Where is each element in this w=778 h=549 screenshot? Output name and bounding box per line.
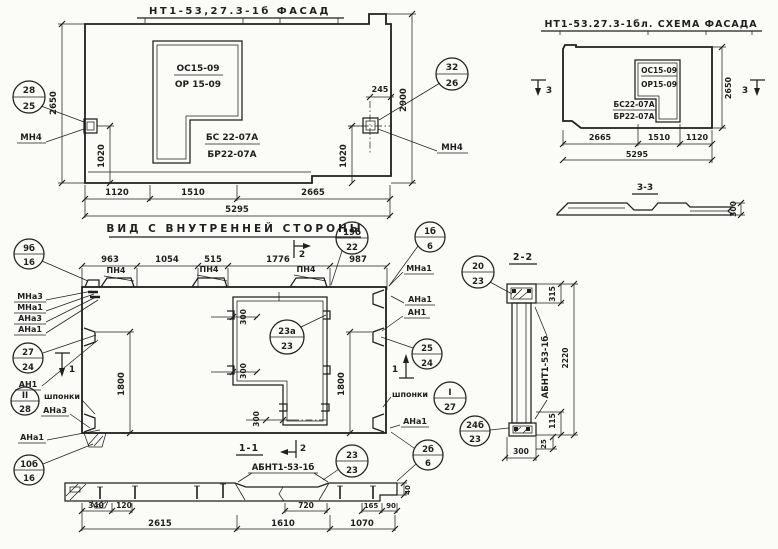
- svg-text:1800: 1800: [117, 372, 127, 396]
- svg-text:300: 300: [239, 363, 248, 379]
- svg-text:МН4: МН4: [441, 143, 463, 153]
- balloon-32-26: 32 26: [379, 58, 468, 120]
- svg-text:5295: 5295: [225, 205, 249, 215]
- svg-text:АНа1: АНа1: [408, 295, 432, 304]
- cut-mark-2-top: 2: [294, 240, 311, 260]
- svg-text:315: 315: [548, 286, 557, 302]
- web: [512, 303, 531, 423]
- svg-text:шпонки: шпонки: [44, 392, 80, 401]
- svg-text:28: 28: [23, 86, 36, 96]
- svg-text:987: 987: [349, 255, 367, 265]
- window-anchor-tabs: [227, 311, 330, 411]
- svg-text:28: 28: [19, 405, 31, 415]
- svg-text:1120: 1120: [686, 133, 709, 142]
- svg-text:1б: 1б: [424, 226, 436, 237]
- window-offset-dims: 300 300 300: [211, 309, 326, 427]
- svg-text:23: 23: [346, 451, 358, 461]
- svg-text:1: 1: [69, 365, 75, 375]
- svg-text:23: 23: [281, 342, 293, 352]
- svg-text:МНа3: МНа3: [17, 292, 43, 301]
- svg-text:1800: 1800: [337, 372, 347, 396]
- svg-text:3: 3: [546, 86, 552, 96]
- svg-text:1776: 1776: [266, 255, 290, 265]
- balloon-23-23: 23 23: [323, 445, 368, 480]
- beam-label: АБНТ1-53-1б: [252, 462, 315, 473]
- balloon-9b-16: 9б 16: [14, 239, 88, 281]
- section-2-2: 2-2 АБНТ1-53-1б 315 2220 115: [460, 252, 578, 461]
- svg-text:2665: 2665: [589, 133, 612, 142]
- facade-dimensions: 2650 1020 2900 1020 245 1120 1510 2665: [49, 11, 416, 219]
- svg-text:10б: 10б: [20, 459, 38, 470]
- svg-text:24б: 24б: [466, 420, 484, 431]
- svg-text:1054: 1054: [155, 255, 179, 265]
- scheme-sill-label-top: БС22-07А: [613, 100, 654, 109]
- inner-vertical-dimensions: 1800 1800: [96, 329, 372, 436]
- scheme-cut-mark-right: 3: [742, 80, 765, 96]
- balloon-10b-16: 10б 16: [14, 444, 93, 485]
- balloon-1b-6: 1б 6: [389, 222, 445, 286]
- scheme-opening-label-top: ОС15-09: [641, 66, 677, 75]
- svg-text:1: 1: [392, 365, 398, 375]
- scheme-sill-label-bottom: БР22-07А: [613, 112, 654, 121]
- section-2-2-title: 2-2: [513, 252, 533, 263]
- svg-text:1610: 1610: [271, 519, 295, 529]
- svg-text:32: 32: [446, 63, 459, 73]
- svg-text:515: 515: [204, 255, 222, 265]
- svg-text:16: 16: [23, 474, 35, 484]
- facade-opening-label-top: ОС15-09: [176, 64, 219, 74]
- section-1-1-title: 1-1: [239, 443, 259, 454]
- svg-text:2б: 2б: [422, 444, 434, 455]
- inner-view: ВИД С ВНУТРЕННЕЙ СТОРОНЫ ПН4 ПН4 ПН4 963…: [11, 222, 466, 485]
- section-3-3: 3-3 300: [557, 183, 745, 218]
- inner-panel-outline: [82, 287, 386, 433]
- svg-text:300: 300: [513, 447, 529, 456]
- balloon-I-27: I 27: [434, 382, 466, 414]
- svg-text:720: 720: [298, 501, 314, 510]
- svg-text:3: 3: [742, 86, 748, 96]
- svg-text:25: 25: [540, 439, 548, 449]
- svg-text:МН4: МН4: [20, 133, 42, 143]
- svg-text:22: 22: [346, 243, 358, 253]
- drawing-sheet: НТ1-53,27.3-1б ФАСАД ОС15-09 ОР 15-09 БС…: [0, 0, 778, 549]
- svg-text:120: 120: [116, 501, 132, 510]
- svg-text:40: 40: [404, 485, 412, 495]
- section-3-3-title: 3-3: [637, 183, 653, 193]
- scheme-opening-label-bottom: ОР15-09: [641, 80, 677, 89]
- svg-text:1510: 1510: [648, 133, 671, 142]
- svg-text:300: 300: [252, 411, 261, 427]
- svg-text:340: 340: [88, 501, 104, 510]
- svg-text:АН1: АН1: [408, 308, 427, 317]
- svg-text:1020: 1020: [97, 144, 107, 168]
- balloon-20-23: 20 23: [462, 256, 512, 294]
- inner-title: ВИД С ВНУТРЕННЕЙ СТОРОНЫ: [106, 222, 363, 235]
- svg-text:24: 24: [22, 363, 34, 373]
- svg-text:1510: 1510: [181, 188, 205, 198]
- svg-text:27: 27: [444, 403, 456, 413]
- svg-text:МНа1: МНа1: [406, 264, 432, 273]
- corner-anchor-marks: [88, 292, 100, 297]
- facade-anchor-left: [84, 119, 97, 133]
- facade-anchor-right: [348, 101, 392, 155]
- loop-label-1: ПН4: [107, 266, 126, 275]
- scheme-title: НТ1-53.27.3-1бл. СХЕМА ФАСАДА: [544, 19, 757, 30]
- svg-text:963: 963: [101, 255, 119, 265]
- balloon-2b-6: 2б 6: [391, 432, 443, 481]
- section-1-1-outline: [65, 483, 397, 501]
- svg-text:2220: 2220: [561, 348, 570, 369]
- inner-top-dimensions: 963 1054 515 1776 987: [79, 255, 390, 290]
- svg-text:20: 20: [472, 262, 484, 272]
- section-3-3-depth: 300: [729, 201, 738, 217]
- svg-text:27: 27: [22, 348, 34, 358]
- scheme-view: НТ1-53.27.3-1бл. СХЕМА ФАСАДА ОС15-09 ОР…: [531, 19, 765, 163]
- beam-label-rotated: АБНТ1-53-1б: [540, 336, 551, 399]
- svg-text:165: 165: [364, 502, 379, 510]
- svg-text:I: I: [448, 388, 451, 398]
- svg-text:26: 26: [446, 79, 459, 89]
- facade-anchor-callout-left: МН4: [17, 129, 84, 143]
- facade-title: НТ1-53,27.3-1б ФАСАД: [149, 5, 331, 17]
- section-2-2-dimensions: 315 2220 115 25 300: [502, 281, 578, 461]
- svg-text:23: 23: [469, 435, 481, 445]
- balloon-27-24: 27 24: [13, 335, 96, 373]
- corner-tab-hatched: [84, 433, 106, 447]
- svg-text:23: 23: [472, 277, 484, 287]
- svg-text:6: 6: [425, 459, 431, 469]
- svg-text:23: 23: [346, 466, 358, 476]
- svg-text:115: 115: [548, 413, 557, 429]
- svg-text:25: 25: [421, 344, 433, 354]
- balloon-23a-23: 23а 23: [270, 315, 326, 354]
- drawing-canvas: НТ1-53,27.3-1б ФАСАД ОС15-09 ОР 15-09 БС…: [0, 0, 778, 549]
- balloon-II-28: II 28: [11, 387, 39, 415]
- svg-text:24: 24: [421, 359, 433, 369]
- svg-text:9б: 9б: [23, 243, 35, 254]
- svg-text:90: 90: [386, 502, 396, 510]
- svg-text:25: 25: [23, 102, 36, 112]
- facade-sill-label-top: БС 22-07А: [206, 133, 258, 143]
- svg-text:1120: 1120: [105, 188, 129, 198]
- svg-text:6: 6: [427, 242, 433, 252]
- svg-text:АНа3: АНа3: [18, 314, 42, 323]
- svg-text:2650: 2650: [49, 91, 59, 115]
- svg-text:2900: 2900: [399, 88, 409, 112]
- svg-text:23а: 23а: [278, 327, 296, 337]
- svg-text:МНа1: МНа1: [17, 303, 43, 312]
- svg-text:АНа1: АНа1: [18, 325, 42, 334]
- facade-view: НТ1-53,27.3-1б ФАСАД ОС15-09 ОР 15-09 БС…: [13, 5, 468, 219]
- svg-text:300: 300: [239, 309, 248, 325]
- inner-window-inner: [237, 301, 323, 421]
- facade-opening-label-bottom: ОР 15-09: [175, 80, 221, 90]
- svg-text:1070: 1070: [350, 519, 374, 529]
- svg-text:шпонки: шпонки: [392, 390, 428, 399]
- lifting-loops: [85, 278, 327, 287]
- svg-text:2615: 2615: [148, 519, 172, 529]
- section-1-1: АБНТ1-53-1б 23 23 340 120 720 165: [65, 445, 412, 532]
- svg-text:2665: 2665: [301, 188, 325, 198]
- svg-text:245: 245: [372, 85, 389, 94]
- svg-text:АНа1: АНа1: [20, 433, 44, 442]
- balloon-25-24: 25 24: [381, 337, 442, 369]
- section-3-3-profile: [557, 203, 733, 215]
- facade-window-outer: [153, 41, 242, 163]
- scheme-cut-mark-left: 3: [531, 80, 552, 96]
- cut-mark-1-left: 1: [55, 353, 75, 377]
- svg-text:5295: 5295: [626, 150, 649, 159]
- svg-text:2650: 2650: [724, 76, 733, 99]
- svg-text:2: 2: [300, 444, 306, 454]
- svg-text:2: 2: [299, 250, 305, 260]
- svg-text:16: 16: [23, 258, 35, 268]
- svg-text:19б: 19б: [343, 227, 361, 238]
- facade-sill-label-bottom: БР22-07А: [207, 150, 256, 160]
- balloon-24b-23: 24б 23: [460, 416, 509, 446]
- svg-text:АНа1: АНа1: [403, 417, 427, 426]
- section-1-1-dimensions: 340 120 720 165 90 2615 1610 1070 40: [79, 480, 412, 532]
- svg-text:II: II: [22, 391, 28, 401]
- cut-mark-1-right: 1: [392, 354, 414, 378]
- cut-mark-2-bottom: 2: [280, 440, 306, 458]
- svg-text:1020: 1020: [339, 144, 349, 168]
- svg-text:АНа3: АНа3: [43, 406, 67, 415]
